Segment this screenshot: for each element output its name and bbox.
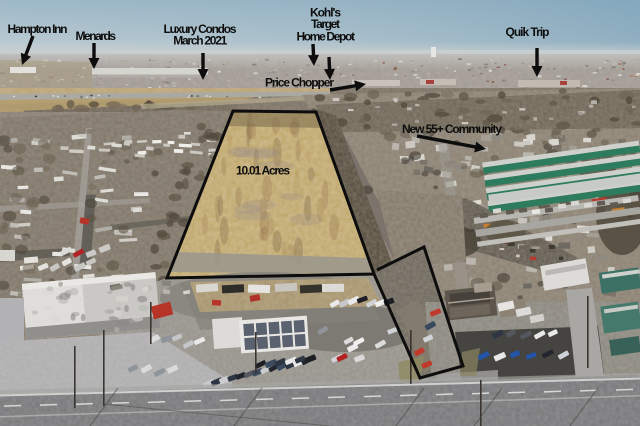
svg-text:Price Chopper: Price Chopper <box>265 76 334 90</box>
svg-text:Quik Trip: Quik Trip <box>506 25 550 39</box>
svg-text:March 2021: March 2021 <box>173 34 227 48</box>
svg-text:Home Depot: Home Depot <box>297 30 356 44</box>
svg-text:Hampton Inn: Hampton Inn <box>8 22 68 36</box>
svg-text:Menards: Menards <box>76 29 117 43</box>
svg-text:New 55+ Community: New 55+ Community <box>402 122 502 136</box>
svg-text:10.01 Acres: 10.01 Acres <box>236 164 290 178</box>
